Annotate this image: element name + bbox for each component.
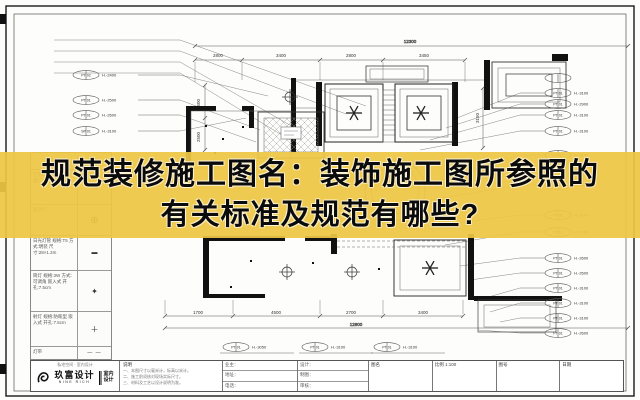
svg-text:3400: 3400 [276, 53, 287, 58]
svg-text:H.-2600: H.-2600 [574, 331, 589, 336]
svg-text:PT 01: PT 01 [553, 103, 563, 107]
brand-name-en: NINE RICH [59, 381, 90, 385]
svg-text:H.-3100: H.-3100 [574, 301, 589, 306]
svg-text:H.-3100: H.-3100 [574, 91, 589, 96]
svg-text:PT 01: PT 01 [553, 272, 563, 276]
designer-row: 制图： [298, 371, 368, 381]
svg-text:PT 01: PT 01 [553, 317, 563, 321]
logo-divider [99, 371, 100, 385]
svg-text:SP 01: SP 01 [81, 130, 91, 134]
article-image: 12300 2800340028003450 12800 17004500270… [0, 0, 640, 400]
ceiling-lamp-symbol [344, 264, 360, 280]
headline-banner: 规范装修施工图名：装饰施工图所参照的 有关标准及规范有哪些? [0, 152, 640, 238]
svg-text:PT 01: PT 01 [553, 332, 563, 336]
designer-row: 审核： [298, 382, 368, 391]
svg-text:PT 01: PT 01 [81, 114, 91, 118]
ceiling-callout: SP 01 H.-3100 [73, 127, 180, 136]
date-cell: 日期 [560, 361, 623, 391]
legend-row: 筒灯 规格:3W 方式:可调角 嵌入式 开孔:7.5cm ✦ [31, 271, 111, 312]
svg-text:H.-3100: H.-3100 [574, 316, 589, 321]
ceiling-callout: PT 02 H.-2400 [73, 71, 180, 80]
brand-side-2: 设计 [104, 378, 114, 383]
svg-text:H.-3100: H.-3100 [403, 345, 418, 350]
dim-label: 2700 [346, 310, 357, 315]
svg-text:PT 01: PT 01 [553, 302, 563, 306]
logo-cell: 私宅空间 · 室内设计 玖富设计 NINE RICH 室内 设计 [31, 361, 120, 391]
nine-rich-logo-icon [36, 370, 51, 385]
svg-text:PT 01: PT 01 [310, 346, 320, 350]
designer-row: 设计： [298, 361, 368, 371]
tube-light-icon: ▬ [78, 236, 111, 270]
fan-light-symbol [346, 106, 362, 120]
svg-text:PT 01: PT 01 [553, 130, 563, 134]
note-line: 三、材料及工艺以设计说明为准。 [123, 380, 219, 386]
ceiling-callout: PT 01 H.-3050 [220, 343, 294, 353]
owner-row: 电话： [223, 382, 297, 391]
registration-mark [0, 364, 6, 374]
fan-light-symbol [422, 261, 438, 275]
ceiling-callout: PT 01 H.-2600 [520, 329, 589, 338]
downlight-icon: ✦ [78, 271, 111, 311]
owner-row: 业主： [223, 361, 297, 371]
dim-label: 3400 [418, 310, 429, 315]
ceiling-callout: PT 01 H.-2900 [520, 100, 589, 109]
svg-text:PT 02: PT 02 [81, 74, 91, 78]
sheet-title-cell: 图名 [369, 361, 433, 391]
owner-row: 地址： [223, 371, 297, 381]
svg-text:12300: 12300 [404, 39, 417, 44]
svg-text:H.-2500: H.-2500 [102, 98, 117, 103]
ceiling-lamp-symbol [279, 264, 295, 280]
designer-cell: 设计：制图：审核： [298, 361, 369, 391]
ceiling-callout: PT 01 H.-2600 [520, 254, 589, 263]
ceiling-callout: PT 01 H.-2500 [73, 96, 180, 105]
callouts-bottom: PT 01 H.-3050 PT 01 H.-3100 PT 01 H.-310… [220, 343, 445, 353]
owner-cell: 业主：地址：电话： [223, 361, 298, 391]
svg-text:H.-2600: H.-2600 [574, 271, 589, 276]
title-block: 私宅空间 · 室内设计 玖富设计 NINE RICH 室内 设计 说明 [30, 360, 624, 392]
dim-label: 3400 [276, 53, 287, 58]
svg-text:3400: 3400 [418, 310, 429, 315]
headline-line-1: 规范装修施工图名：装饰施工图所参照的 [41, 155, 599, 195]
svg-text:PT 01: PT 01 [553, 114, 563, 118]
vertical-dim-label: 2500 [196, 131, 201, 142]
svg-text:H.-3100: H.-3100 [574, 129, 589, 134]
svg-text:3450: 3450 [419, 53, 430, 58]
notes-label: 说明 [123, 362, 132, 367]
svg-text:H.-3100: H.-3100 [102, 129, 117, 134]
svg-text:PT 01: PT 01 [553, 257, 563, 261]
ceiling-callout: PT 01 H.-3100 [371, 343, 445, 353]
dim-label: 2800 [346, 53, 357, 58]
svg-text:2500: 2500 [196, 131, 201, 142]
dim-label: 3450 [419, 53, 430, 58]
svg-text:PT 01: PT 01 [231, 346, 241, 350]
ceiling-callout: PT 01 H.-3100 [299, 343, 373, 353]
svg-text:4500: 4500 [271, 310, 282, 315]
headline-line-2: 有关标准及规范有哪些? [161, 195, 480, 235]
fan-light-symbol [413, 106, 429, 120]
svg-text:PT 01: PT 01 [553, 287, 563, 291]
svg-text:H.-3100: H.-3100 [574, 286, 589, 291]
svg-text:2800: 2800 [346, 53, 357, 58]
brand-name-cn: 玖富设计 [54, 371, 94, 380]
registration-mark [0, 14, 6, 24]
svg-text:PT 01: PT 01 [81, 99, 91, 103]
svg-text:H.-2600: H.-2600 [102, 113, 117, 118]
svg-text:PT 01: PT 01 [382, 346, 392, 350]
ceiling-callout: PT 01 H.-3100 [520, 127, 589, 136]
ceiling-callout: PT 01 H.-3100 [520, 284, 589, 293]
callouts-left: PT 02 H.-2400 PT 01 H.-2500 PT 01 H.-260… [73, 71, 180, 136]
light-strip-icon: — — [78, 347, 111, 359]
svg-text:1700: 1700 [193, 310, 204, 315]
svg-text:H.-3050: H.-3050 [252, 345, 267, 350]
svg-text:H.-2400: H.-2400 [102, 73, 117, 78]
ceiling-callout: PT 01 H.-3100 [520, 314, 589, 323]
legend-row: 日光灯管 规格:T5 方式:明装 尺寸:28×1.2m ▬ [31, 236, 111, 271]
dim-label: 4500 [271, 310, 282, 315]
svg-text:2700: 2700 [346, 310, 357, 315]
svg-text:H.-3100: H.-3100 [331, 345, 346, 350]
ceiling-callout: PT 01 H.-2600 [520, 269, 589, 278]
sheet-number-cell: 图号 [497, 361, 561, 391]
svg-text:H.-3100: H.-3100 [574, 113, 589, 118]
svg-text:PT 01: PT 01 [553, 92, 563, 96]
scale-cell: 比例 1:100 [433, 361, 497, 391]
notes-cell: 说明 一、本图尺寸以毫米计，标高以米计。二、施工前须核对现场实际尺寸。三、材料及… [120, 361, 223, 391]
spotlight-icon: ＋ [78, 312, 111, 346]
company-note: 私宅空间 · 室内设计 [57, 362, 93, 368]
svg-text:12800: 12800 [350, 322, 363, 327]
legend-row: 灯带 — — [31, 347, 111, 359]
legend-row: 射灯 规格:防眩型 嵌入式 开孔:7.5cm ＋ [31, 312, 111, 347]
svg-text:H.-2600: H.-2600 [574, 256, 589, 261]
svg-text:H.-2900: H.-2900 [574, 102, 589, 107]
dim-label: 1700 [193, 310, 204, 315]
ceiling-callout: PT 01 H.-3100 [520, 111, 589, 120]
ceiling-callout: PT 01 H.-2600 [73, 111, 180, 120]
